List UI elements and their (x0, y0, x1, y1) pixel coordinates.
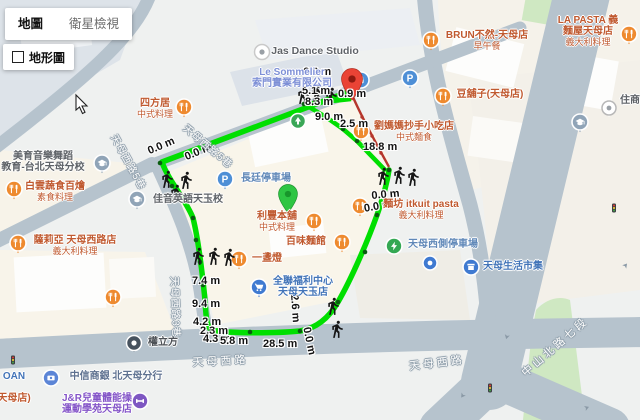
poi-label[interactable]: 利豐本舖中式料理 (257, 211, 297, 233)
bank-icon[interactable] (43, 370, 59, 386)
poi-label[interactable]: Jas Dance Studio (271, 46, 359, 57)
street-label: 天母西路 (192, 351, 249, 370)
distance-label: 7.4 m (192, 275, 220, 287)
map-type-control[interactable]: 地圖 衛星檢視 (5, 8, 132, 40)
poi-label[interactable]: 佳音英語天玉校 (153, 194, 223, 205)
poi-label[interactable]: 四方居中式料理 (137, 98, 173, 120)
distance-label: 8.3 m (305, 96, 333, 108)
terrain-toggle[interactable]: 地形圖 (3, 44, 74, 70)
restaurant-icon[interactable] (176, 99, 192, 117)
satellite-button[interactable]: 衛星檢視 (56, 8, 132, 40)
poi-label[interactable]: 百味麵館 (286, 236, 326, 247)
poi-label[interactable]: 白雲蔬食百燴素食料理 (25, 181, 85, 203)
distance-label: 2.5 m (340, 118, 368, 130)
poi-label[interactable]: 天母店) (0, 393, 31, 404)
distance-label: 2.6 m (288, 294, 302, 323)
park-poi-icon[interactable] (291, 114, 306, 129)
pedestrian-icon[interactable] (394, 167, 404, 184)
distance-label: 0.9 m (338, 88, 366, 100)
parking-icon[interactable] (402, 70, 418, 88)
cursor-pointer (76, 95, 87, 114)
market-icon[interactable] (463, 259, 479, 275)
poi-label[interactable]: 長廷停車場 (241, 173, 291, 184)
poi-label[interactable]: 天母西側停車場 (408, 239, 478, 250)
poi-label[interactable]: Le Sommelier索門實業有限公司 (252, 67, 332, 89)
poi-label[interactable]: 豆舖子(天母店) (457, 89, 524, 100)
school-icon[interactable] (129, 191, 145, 209)
poi-label[interactable]: 劉媽媽抄手小吃店中式麵食 (374, 121, 454, 143)
poi-label[interactable]: 美育音樂舞蹈教育-台北天母分校 (1, 151, 84, 173)
place-dot-icon[interactable] (255, 45, 270, 60)
place-dot-icon[interactable] (423, 256, 437, 270)
poi-label[interactable]: 一盞燈 (252, 253, 282, 264)
poi-label[interactable]: 權立方 (148, 337, 178, 348)
distance-label: 5.8 m (220, 335, 248, 347)
sports-icon[interactable] (132, 393, 148, 409)
poi-label[interactable]: 薩莉亞 天母西路店義大利料理 (34, 235, 117, 257)
terrain-checkbox[interactable] (12, 51, 24, 63)
ev-charger-icon[interactable] (386, 238, 402, 254)
map-button[interactable]: 地圖 (5, 8, 56, 40)
poi-label[interactable]: 全聯福利中心天母天玉店 (273, 276, 333, 298)
distance-label: 9.0 m (315, 111, 343, 123)
poi-label[interactable]: 住商 (620, 95, 640, 106)
poi-label[interactable]: OAN (3, 371, 25, 382)
poi-label[interactable]: J&R兒童體能操運動學苑天母店 (62, 393, 132, 415)
poi-label[interactable]: 中信商銀 北天母分行 (70, 371, 163, 382)
poi-label[interactable]: LA PASTA 義麵屋天母店義大利料理 (558, 15, 619, 48)
distance-label: 28.5 m (263, 338, 297, 350)
pedestrian-icon[interactable] (408, 169, 418, 186)
terrain-label: 地形圖 (29, 49, 65, 66)
poi-label[interactable]: 天母生活市集 (483, 261, 543, 272)
poi-label[interactable]: 麵坊 itkuit pasta義大利料理 (383, 199, 459, 221)
street-label: 天母西路3巷 (168, 276, 185, 338)
map-canvas[interactable]: P (0, 0, 640, 420)
poi-label[interactable]: BRUN不然-天母店早午餐 (446, 30, 528, 52)
distance-label: 9.4 m (192, 298, 220, 310)
